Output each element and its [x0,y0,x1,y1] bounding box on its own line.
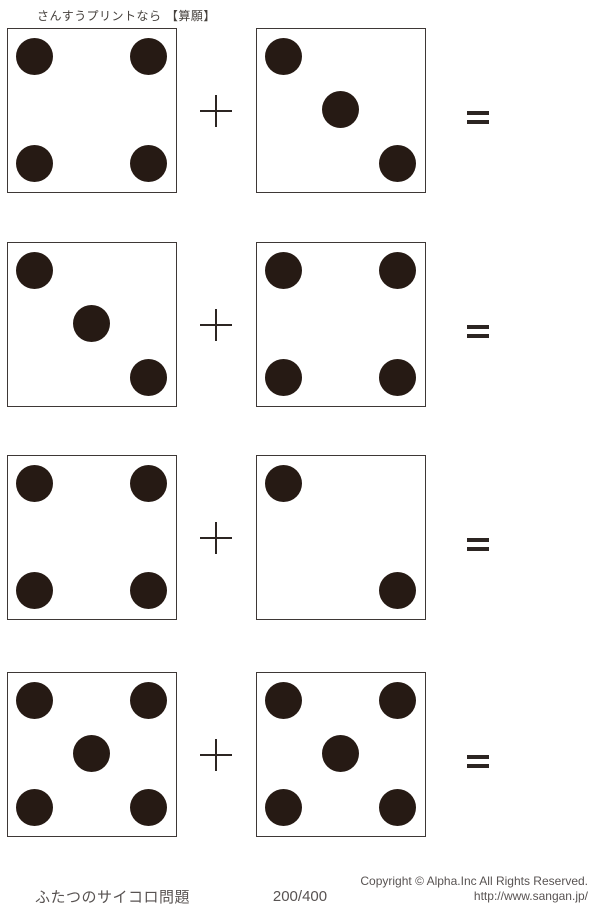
die-pip [130,682,167,719]
plus-vertical-bar [215,739,218,771]
equals-top-bar [467,325,489,329]
equals-top-bar [467,538,489,542]
die-left [7,28,177,193]
equals-icon [467,755,489,768]
die-pip [16,789,53,826]
die-pip [73,735,110,772]
worksheet-page: さんすうプリントなら 【算願】 [0,0,600,907]
die-pip [130,572,167,609]
die-pip [16,682,53,719]
die-pip [265,38,302,75]
die-right [256,672,426,837]
die-pip [379,682,416,719]
die-pip [16,252,53,289]
die-pip [73,305,110,342]
die-pip [265,465,302,502]
die-pip [265,682,302,719]
die-pip [379,145,416,182]
die-pip [265,359,302,396]
page-title: さんすうプリントなら 【算願】 [37,7,216,24]
die-pip [16,465,53,502]
equals-bottom-bar [467,334,489,338]
die-pip [130,38,167,75]
die-pip [379,359,416,396]
plus-vertical-bar [215,309,218,341]
problem-row [0,455,600,622]
equals-top-bar [467,111,489,115]
equals-bottom-bar [467,547,489,551]
problem-row [0,28,600,195]
die-right [256,455,426,620]
problem-row [0,672,600,839]
plus-icon [200,739,232,771]
plus-icon [200,309,232,341]
die-pip [379,252,416,289]
die-pip [265,789,302,826]
die-pip [379,572,416,609]
die-left [7,242,177,407]
copyright-text: Copyright © Alpha.Inc All Rights Reserve… [360,874,588,889]
equals-bottom-bar [467,764,489,768]
die-pip [379,789,416,826]
plus-icon [200,522,232,554]
url-text: http://www.sangan.jp/ [360,889,588,904]
problem-row [0,242,600,409]
equals-icon [467,325,489,338]
plus-vertical-bar [215,522,218,554]
die-left [7,672,177,837]
equals-icon [467,111,489,124]
footer-copyright-block: Copyright © Alpha.Inc All Rights Reserve… [360,874,588,904]
die-pip [130,359,167,396]
plus-icon [200,95,232,127]
equals-icon [467,538,489,551]
die-pip [16,145,53,182]
die-pip [322,735,359,772]
die-pip [16,38,53,75]
die-pip [130,145,167,182]
die-pip [322,91,359,128]
die-pip [16,572,53,609]
equals-top-bar [467,755,489,759]
plus-vertical-bar [215,95,218,127]
equals-bottom-bar [467,120,489,124]
die-right [256,242,426,407]
die-right [256,28,426,193]
die-left [7,455,177,620]
die-pip [130,789,167,826]
die-pip [130,465,167,502]
die-pip [265,252,302,289]
